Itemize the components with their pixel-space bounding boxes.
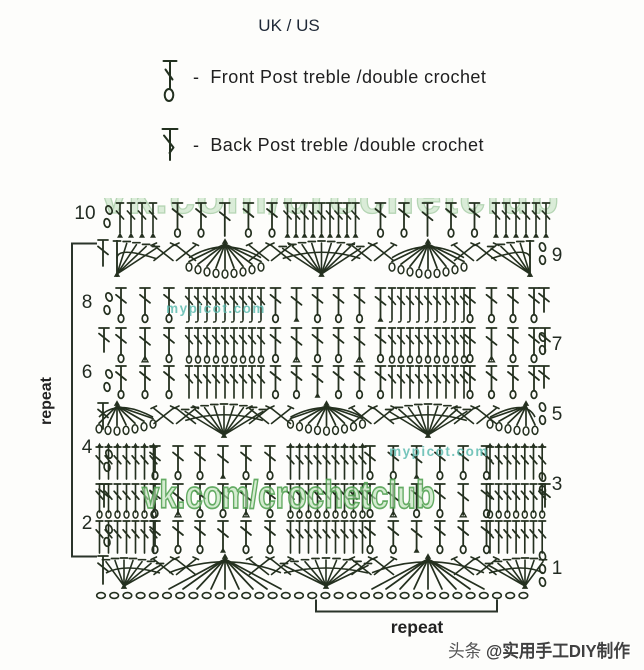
svg-text:2: 2 <box>82 513 93 534</box>
svg-text:10: 10 <box>74 203 95 224</box>
svg-text:3: 3 <box>552 474 563 495</box>
svg-text:8: 8 <box>82 292 93 313</box>
svg-text:6: 6 <box>82 362 93 383</box>
svg-text:- Back Post treble /double cr: - Back Post treble /double crochet <box>193 135 484 155</box>
svg-text:- Front Post treble /double c: - Front Post treble /double crochet <box>193 67 486 87</box>
svg-text:1: 1 <box>552 558 563 579</box>
svg-text:头条 @实用手工DIY制作: 头条 @实用手工DIY制作 <box>448 641 630 661</box>
svg-text:vk.com/crochetclub: vk.com/crochetclub <box>142 474 435 517</box>
svg-text:9: 9 <box>552 245 563 266</box>
svg-text:mypicot.com: mypicot.com <box>166 301 266 316</box>
svg-text:repeat: repeat <box>391 617 444 637</box>
svg-text:4: 4 <box>82 437 93 458</box>
svg-text:mypicot.com: mypicot.com <box>389 444 489 459</box>
svg-text:5: 5 <box>552 404 563 425</box>
svg-text:UK / US: UK / US <box>258 16 319 35</box>
svg-text:7: 7 <box>552 334 563 355</box>
svg-text:repeat: repeat <box>38 376 55 425</box>
